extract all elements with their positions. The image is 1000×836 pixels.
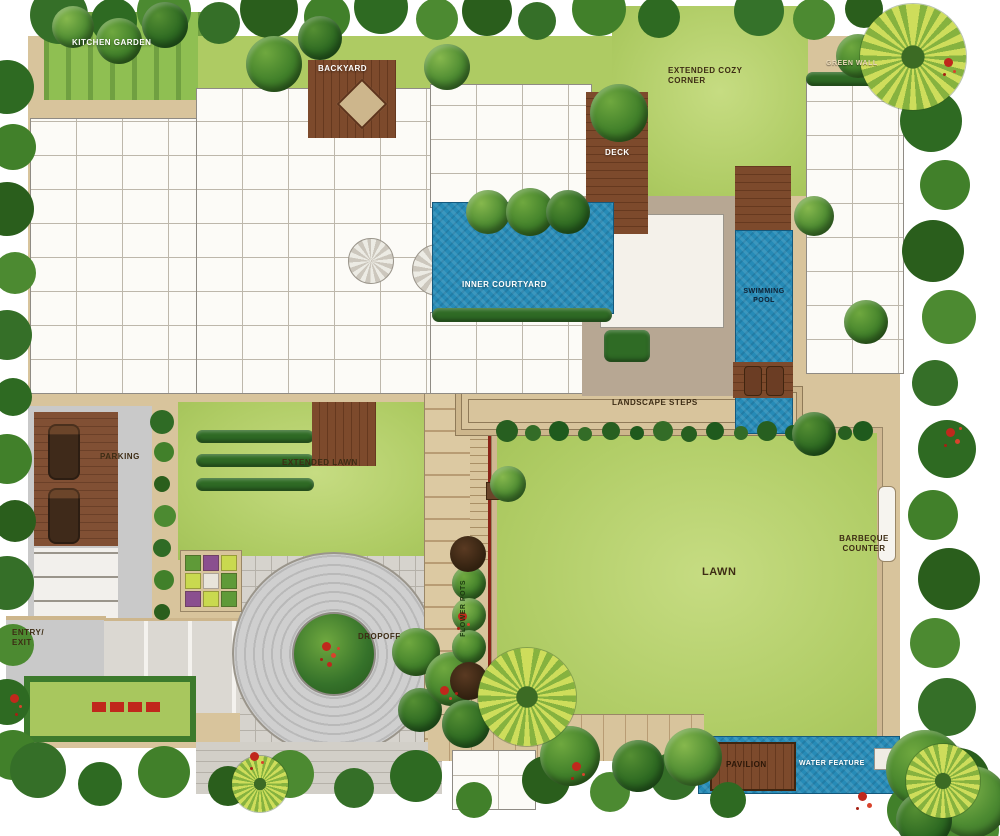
label-water-feature: WATER FEATURE xyxy=(799,760,865,769)
label-parking: PARKING xyxy=(100,452,140,462)
label-landscape-steps: LANDSCAPE STEPS xyxy=(612,398,698,408)
building-left-wing xyxy=(30,118,200,394)
hedge-parking-east xyxy=(150,410,174,434)
hedge-row xyxy=(196,478,314,491)
palm-tree-icon xyxy=(478,648,576,746)
label-kitchen-garden: KITCHEN GARDEN xyxy=(72,38,151,48)
label-barbeque-counter: BARBEQUE COUNTER xyxy=(832,534,896,554)
building-south-center xyxy=(430,312,592,394)
label-pavilion: PAVILION xyxy=(726,760,767,770)
spiral-stair-icon xyxy=(348,238,394,284)
flower-cluster-icon xyxy=(440,686,449,695)
palm-tree-icon xyxy=(232,756,288,812)
tree-icon xyxy=(664,728,722,786)
tree-icon xyxy=(424,44,470,90)
lounger-icon xyxy=(766,366,784,396)
foliage-bottom xyxy=(10,742,66,798)
parking-stalls xyxy=(34,548,118,624)
flower-cluster-icon xyxy=(946,428,955,437)
car-icon xyxy=(48,488,80,544)
tree-icon xyxy=(298,16,342,60)
flower-cluster-icon xyxy=(572,762,581,771)
pool-lounger-deck xyxy=(733,362,793,398)
formal-garden-beds xyxy=(92,702,106,712)
label-entry-exit: ENTRY/ EXIT xyxy=(12,628,56,648)
tree-icon xyxy=(466,190,510,234)
shrub-icon xyxy=(452,630,486,664)
tree-icon xyxy=(612,740,664,792)
palm-tree-icon xyxy=(906,744,980,818)
label-flower-pots: FLOWER POTS xyxy=(460,580,469,637)
flower-cluster-icon xyxy=(944,58,953,67)
tree-icon xyxy=(246,36,302,92)
lounger-icon xyxy=(744,366,762,396)
flower-pot-icon xyxy=(450,536,486,572)
hedge-row xyxy=(196,430,314,443)
car-icon xyxy=(48,424,80,480)
label-lawn: LAWN xyxy=(702,566,736,580)
extended-lawn-deck xyxy=(312,402,376,466)
formal-garden xyxy=(24,676,196,742)
tree-icon xyxy=(794,196,834,236)
label-green-wall: GREEN WALL xyxy=(826,60,878,69)
tree-icon xyxy=(490,466,526,502)
label-extended-lawn: EXTENDED LAWN xyxy=(282,458,358,468)
dropoff-island-tree xyxy=(292,612,376,696)
flower-cluster-icon xyxy=(858,792,867,801)
courtyard-hedge xyxy=(432,308,612,322)
hedge-above-lawn xyxy=(496,420,518,442)
tree-icon xyxy=(590,84,648,142)
flower-cluster-icon xyxy=(322,642,331,651)
label-deck: DECK xyxy=(605,148,630,158)
tree-icon xyxy=(844,300,888,344)
label-backyard: BACKYARD xyxy=(318,64,367,74)
knot-garden xyxy=(180,550,242,612)
label-swimming-pool: SWIMMING POOL xyxy=(738,288,790,306)
label-dropoff: DROPOFF xyxy=(358,632,401,642)
palm-tree-icon xyxy=(860,4,966,110)
swimming-pool-water xyxy=(735,230,793,434)
site-plan: KITCHEN GARDEN BACKYARD EXTENDED COZY CO… xyxy=(0,0,1000,836)
tree-icon xyxy=(546,190,590,234)
label-inner-courtyard: INNER COURTYARD xyxy=(462,280,547,290)
label-extended-cozy-corner: EXTENDED COZY CORNER xyxy=(668,66,746,86)
flower-cluster-icon xyxy=(250,752,259,761)
flower-cluster-icon xyxy=(10,694,19,703)
court-planter xyxy=(604,330,650,362)
tree-icon xyxy=(792,412,836,456)
building-garden-room xyxy=(452,750,536,810)
pool-deck-north xyxy=(735,166,791,230)
